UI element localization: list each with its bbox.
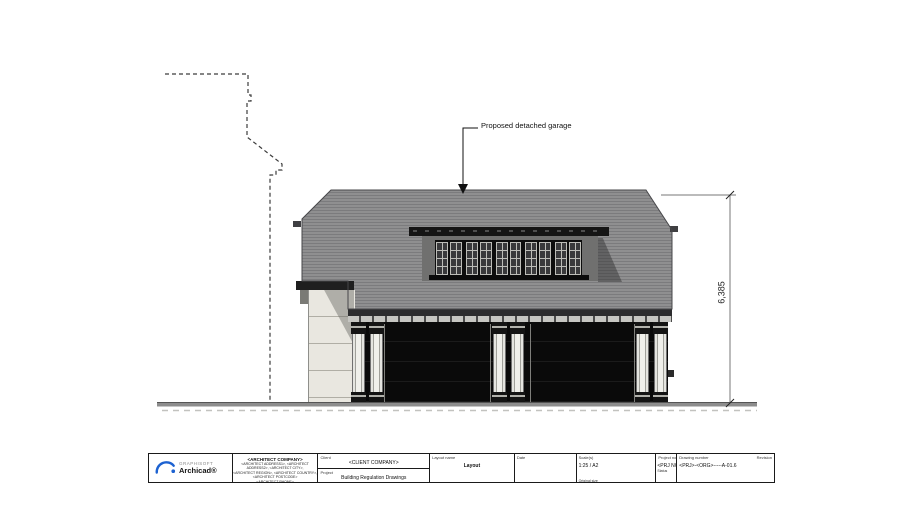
date-cell: Date [515,454,577,482]
scale-cell: Scale(s) 1:25 / A2 Original size [577,454,657,482]
archicad-logo-cell: GRAPHISOFT Archicad® [149,454,233,482]
side-door-detail [668,370,674,377]
column [493,322,506,404]
window-unit [554,240,582,277]
right-gutter-detail [670,226,678,232]
column-pair-left [352,322,383,404]
scale-label: Scale(s) [579,455,594,460]
existing-building-dashed-outline [165,74,282,403]
left-gutter-detail [293,221,301,227]
window-unit [465,240,493,277]
project-label: Project [320,470,332,475]
drawing-number-cell: Drawing number Revision <PRJ>-<ORG>-----… [677,454,774,482]
elevation-sheet: Proposed detached garage 6,385 GRAPHISOF… [0,0,923,516]
project-field: Project Building Regulation Drawings [318,469,429,483]
column [654,322,667,404]
project-no-cell: Project no <PRJ NO> Status [656,454,677,482]
side-wing-roof [296,281,354,290]
window-unit [495,240,523,277]
column-pair-right [636,322,667,404]
status-label: Status [657,469,675,473]
layout-name-cell: Layout name Layout [430,454,515,482]
column [636,322,649,404]
date-label: Date [517,455,525,460]
column [370,322,383,404]
architect-cell: <ARCHITECT COMPANY> <ARCHITECT ADDRESS1>… [233,454,319,482]
project-value: Building Regulation Drawings [318,475,429,481]
column [511,322,524,404]
layout-name-label: Layout name [432,455,455,460]
original-size-label: Original size [579,479,598,482]
window-unit [435,240,463,277]
door-jamb [530,324,531,403]
annotation-leader-line [463,128,478,184]
drawing-number-label: Drawing number [679,455,708,460]
eaves-fascia [348,309,672,316]
revision-label: Revision [757,455,772,460]
dormer-sill [429,275,589,280]
scale-value: 1:25 / A2 [579,463,654,469]
column [352,322,365,404]
dimension-tick-top [726,191,734,199]
door-jamb [384,324,385,403]
client-field: Client <CLIENT COMPANY> [318,454,429,469]
archicad-logo-icon [154,457,176,479]
archicad-wordmark: Archicad® [179,467,217,475]
title-block: GRAPHISOFT Archicad® <ARCHITECT COMPANY>… [148,453,775,483]
drawing-number-value: <PRJ>-<ORG>-----A-01.6 [679,463,772,469]
door-jamb [490,324,491,403]
client-label: Client [320,455,330,460]
side-wing-shadow [300,290,308,304]
layout-name-value: Layout [430,463,514,469]
dormer-header-beam [409,227,609,236]
dimension-tick-bottom [726,399,734,407]
architect-phone: <ARCHITECT PHONE> [233,480,318,483]
client-value: <CLIENT COMPANY> [318,460,429,466]
annotation-proposed-garage: Proposed detached garage [481,121,572,130]
dimension-value: 6,385 [717,271,728,315]
column-pair-middle [493,322,524,404]
architect-address: <ARCHITECT REGION>, <ARCHITECT COUNTRY>,… [233,471,318,480]
window-unit [524,240,552,277]
project-no-label: Project no [658,455,676,460]
dormer-window-band [435,240,582,277]
architect-address: <ARCHITECT ADDRESS1>, <ARCHITECT ADDRESS… [233,462,318,471]
client-project-cell: Client <CLIENT COMPANY> Project Building… [318,454,430,482]
